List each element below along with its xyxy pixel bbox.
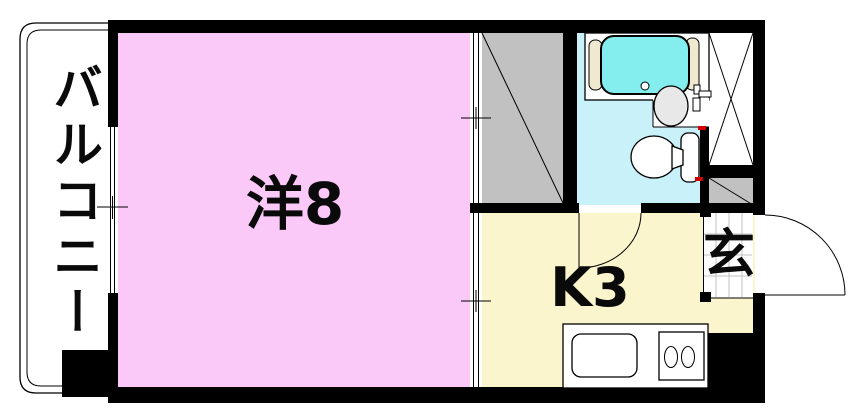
floor-plan: バルコニー 洋8 K3 玄 [0, 0, 867, 410]
toilet [631, 133, 699, 182]
entrance-door [765, 215, 845, 295]
pipe-shaft-cross [709, 33, 753, 165]
meter-box-diagonal [709, 178, 753, 205]
closet-diagonal [482, 33, 563, 203]
entrance-label: 玄 [699, 228, 759, 283]
western-room-label: 洋8 [190, 174, 400, 235]
kitchen-partition [461, 213, 491, 387]
kitchen-counter [563, 324, 708, 388]
balcony-label: バルコニー [36, 54, 100, 350]
closet-door [461, 33, 491, 203]
bathtub [585, 33, 709, 100]
kitchen-label: K3 [520, 260, 660, 317]
